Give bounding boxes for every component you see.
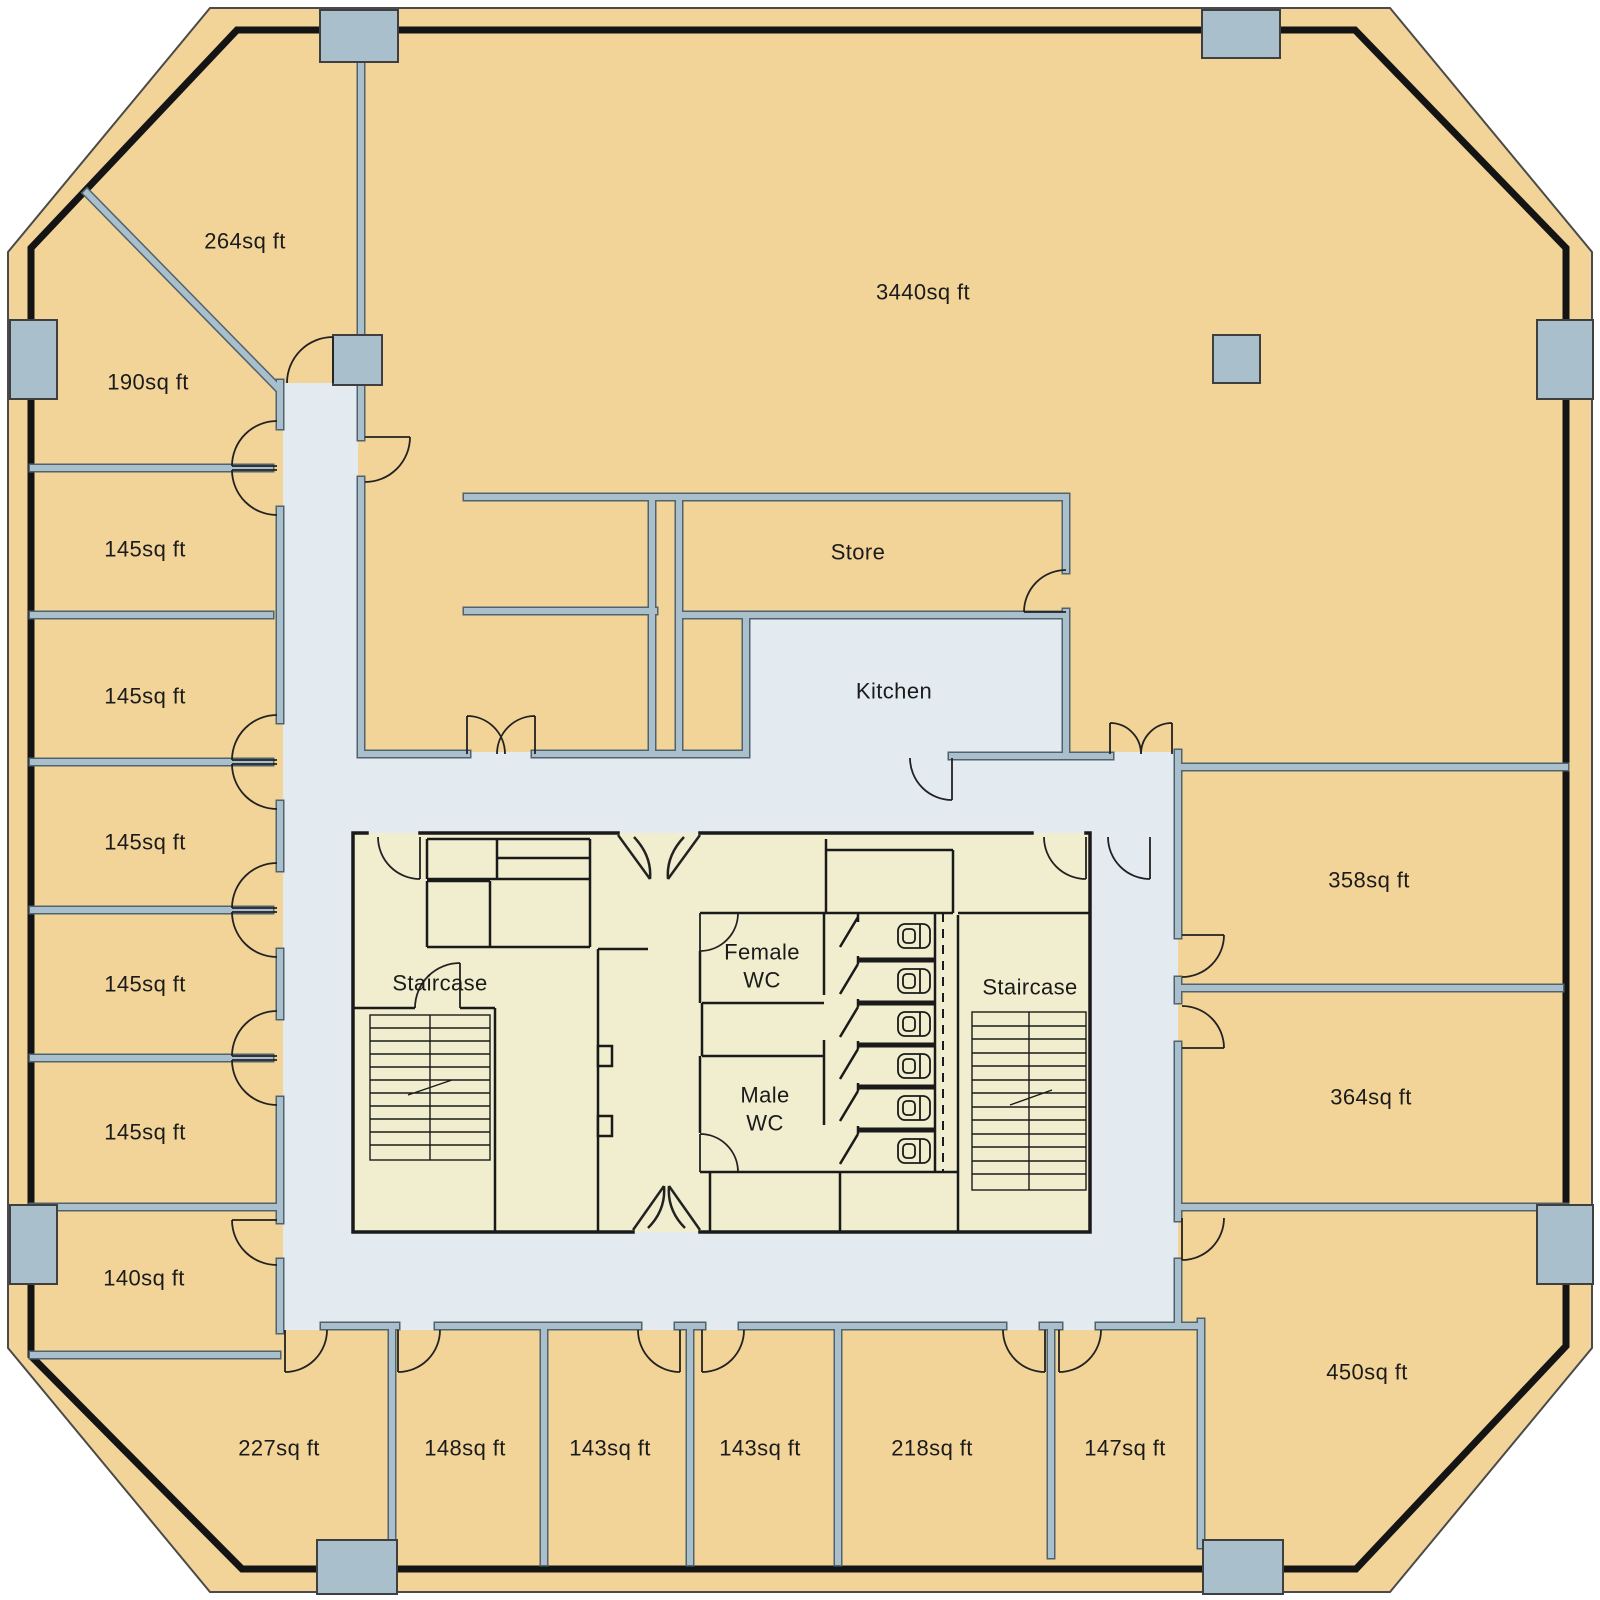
room-label-145-1: 145sq ft (104, 535, 185, 563)
column (1537, 1205, 1593, 1284)
room-label-open-plan: 3440sq ft (876, 278, 970, 306)
toilet-icon (898, 969, 930, 993)
room-label-145-4: 145sq ft (104, 970, 185, 998)
column (1213, 335, 1260, 383)
room-label-227: 227sq ft (238, 1434, 319, 1462)
toilet-icon (898, 1139, 930, 1163)
column (1537, 320, 1593, 399)
column (333, 335, 382, 385)
toilet-icon (898, 1096, 930, 1120)
column (1202, 10, 1280, 58)
room-label-143-2: 143sq ft (719, 1434, 800, 1462)
room-label-kitchen: Kitchen (856, 677, 932, 705)
room-label-145-5: 145sq ft (104, 1118, 185, 1146)
room-label-264: 264sq ft (204, 227, 285, 255)
room-label-145-2: 145sq ft (104, 682, 185, 710)
room-label-148: 148sq ft (424, 1434, 505, 1462)
room-label-358: 358sq ft (1328, 866, 1409, 894)
toilet-icon (898, 1054, 930, 1078)
core-label-male-wc: Male WC (740, 1082, 789, 1137)
room-label-store: Store (831, 538, 886, 566)
core-label-staircase-right: Staircase (982, 973, 1077, 1001)
column (10, 1205, 57, 1284)
column (10, 320, 57, 399)
room-label-143-1: 143sq ft (569, 1434, 650, 1462)
room-label-190: 190sq ft (107, 368, 188, 396)
room-label-140: 140sq ft (103, 1264, 184, 1292)
room-label-450: 450sq ft (1326, 1358, 1407, 1386)
column (317, 1540, 397, 1594)
room-label-145-3: 145sq ft (104, 828, 185, 856)
column (320, 10, 398, 62)
core-label-female-wc: Female WC (724, 939, 800, 994)
floor-plan: 3440sq ft Store Kitchen 264sq ft 190sq f… (0, 0, 1600, 1600)
core-label-staircase-left: Staircase (392, 969, 487, 997)
toilet-icon (898, 924, 930, 948)
toilet-icon (898, 1012, 930, 1036)
column (1203, 1540, 1283, 1594)
room-label-364: 364sq ft (1330, 1083, 1411, 1111)
room-label-218: 218sq ft (891, 1434, 972, 1462)
room-label-147: 147sq ft (1084, 1434, 1165, 1462)
